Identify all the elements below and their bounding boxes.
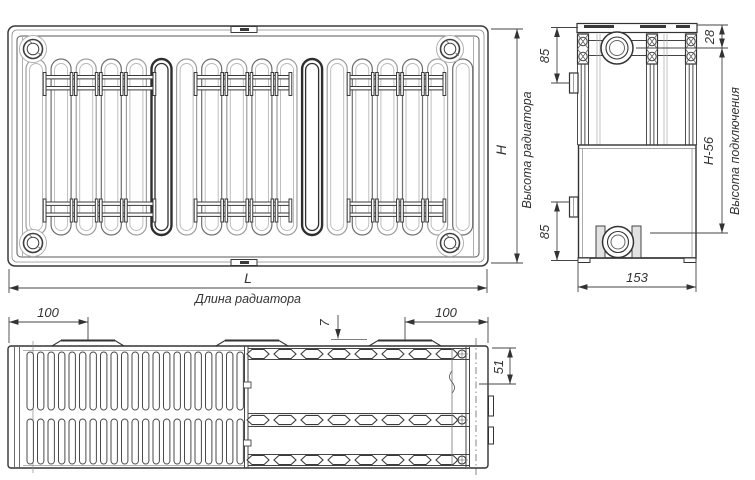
dim-height: H Высота радиатора [491, 29, 534, 263]
dim-h56: H-56 [701, 136, 716, 165]
dim-height-symbol: H [493, 144, 509, 155]
bottom-connection-port [596, 226, 641, 258]
dim-grille-step: 7 [317, 315, 367, 340]
dim-height-caption: Высота радиатора [520, 91, 534, 208]
dim-depth: 153 [578, 260, 696, 292]
panel-edges [578, 64, 697, 145]
drawing-svg: H Высота радиатора L Длина радиатора [0, 0, 755, 480]
grille-slots [27, 352, 243, 464]
grille-tabs [52, 341, 441, 347]
top-connection-port [601, 32, 633, 64]
dim-7: 7 [317, 319, 332, 327]
dim-panel-depth: 51 [479, 348, 516, 384]
dim-right-bracket: 100 [405, 305, 488, 343]
vent-tab-bottom [231, 260, 257, 266]
dim-100-left: 100 [37, 305, 59, 320]
wall-bracket-bottom [570, 197, 579, 217]
dim-85-bottom: 85 [537, 224, 552, 239]
dim-length: L Длина радиатора [9, 269, 487, 306]
side-lug [489, 427, 494, 444]
dim-51: 51 [491, 360, 506, 374]
fin-profile-blocks [578, 34, 697, 64]
dim-connection-caption: Высота подключения [728, 87, 742, 215]
grille-clip [243, 382, 251, 388]
side-lug [489, 396, 494, 416]
front-view: H Высота радиатора L Длина радиатора [8, 26, 534, 306]
vent-tab-top [231, 27, 257, 33]
dim-length-symbol: L [244, 270, 252, 286]
radiator-technical-drawing: H Высота радиатора L Длина радиатора [0, 0, 755, 480]
dim-100-right: 100 [435, 305, 457, 320]
top-view: 100 100 7 51 [8, 305, 516, 475]
dim-85-top: 85 [537, 48, 552, 63]
dim-length-caption: Длина радиатора [193, 292, 301, 306]
weld-seams [247, 348, 468, 466]
dim-left-bracket: 100 [9, 305, 88, 343]
side-view: 85 85 28 H-56 Высота подключения [537, 24, 742, 293]
grille-clip [243, 440, 251, 446]
wall-bracket-top [570, 73, 579, 93]
dim-28: 28 [702, 29, 717, 45]
dim-153: 153 [626, 270, 648, 285]
